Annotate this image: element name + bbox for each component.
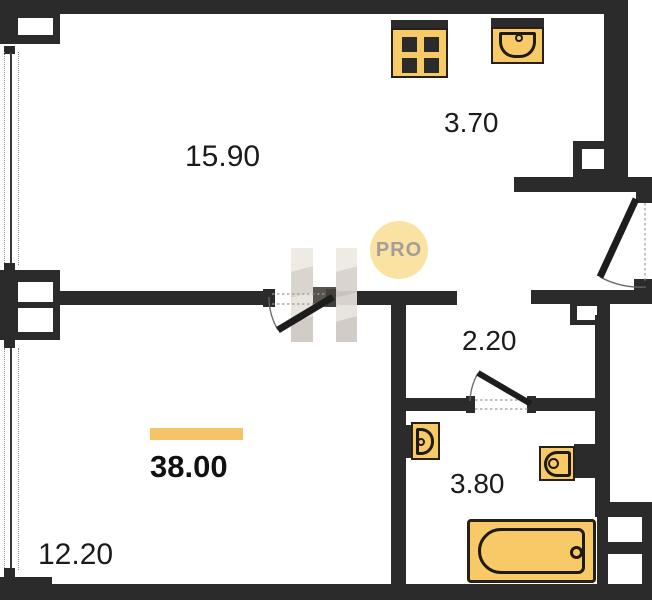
watermark-logo-crossbar bbox=[313, 287, 336, 307]
wall-kitchen-right bbox=[604, 2, 628, 141]
bathtub-icon bbox=[467, 519, 596, 583]
pier-notch-upper bbox=[18, 282, 53, 302]
bathroom-door-leaf bbox=[478, 373, 531, 404]
wall-entry-bottom bbox=[531, 290, 652, 304]
wall-notch-top-left bbox=[18, 18, 53, 35]
floor-plan: PRO 15.90 3.70 2.20 3.80 12.20 38.00 bbox=[0, 0, 652, 600]
window-bedroom bbox=[4, 348, 19, 570]
bathroom-door-jamb-left bbox=[466, 396, 475, 413]
wall-bathroom-top-right bbox=[536, 398, 596, 411]
entry-door-hinge-block bbox=[636, 192, 652, 203]
stove-burner bbox=[424, 58, 439, 73]
total-area-value: 38.00 bbox=[150, 451, 228, 482]
wall-divider-left bbox=[60, 291, 263, 305]
wash-basin-drain bbox=[417, 438, 425, 446]
pier-notch-hall bbox=[577, 306, 597, 320]
kitchen-sink-icon bbox=[491, 27, 544, 64]
entry-door-leaf bbox=[600, 199, 636, 277]
shaft-right-wall bbox=[642, 502, 652, 600]
interior-door-jamb-left bbox=[263, 289, 275, 307]
entry-door-stop-block bbox=[634, 279, 652, 291]
kitchen-sink-counter-strip bbox=[491, 18, 544, 27]
window-glass-line bbox=[10, 52, 12, 265]
window-glass-line bbox=[10, 348, 12, 570]
stove-burner bbox=[402, 37, 417, 52]
wall-entry-top bbox=[514, 177, 652, 192]
bathtub-drain bbox=[570, 546, 583, 559]
window-living bbox=[4, 52, 19, 265]
window2-top-stub bbox=[4, 340, 15, 348]
pier-notch-lower bbox=[18, 308, 53, 332]
room-area-bedroom: 12.20 bbox=[38, 540, 113, 570]
wash-basin-icon bbox=[411, 422, 440, 460]
wall-bathroom-top-left bbox=[391, 398, 466, 411]
bathroom-door-jamb-right bbox=[527, 396, 536, 413]
room-area-living: 15.90 bbox=[185, 142, 260, 172]
room-area-hallway: 2.20 bbox=[462, 327, 517, 355]
stove-burner bbox=[424, 37, 439, 52]
stove-burner bbox=[402, 58, 417, 73]
wall-hall-right bbox=[595, 315, 610, 502]
stove-icon bbox=[391, 28, 448, 78]
pier-notch-kitchen bbox=[582, 149, 604, 169]
watermark-logo-right-bar bbox=[336, 248, 357, 342]
total-area-bar bbox=[150, 428, 243, 440]
shaft-left-wall bbox=[597, 517, 608, 584]
toilet-icon bbox=[539, 446, 575, 481]
kitchen-sink-drain bbox=[515, 34, 523, 42]
toilet-flush bbox=[548, 458, 559, 469]
bathtub-inner bbox=[478, 528, 585, 574]
watermark-logo-left-bar bbox=[291, 248, 313, 342]
pro-watermark-badge: PRO bbox=[370, 221, 428, 279]
wall-bottom bbox=[0, 584, 652, 600]
toilet-backing-wall bbox=[574, 444, 596, 478]
room-area-kitchen: 3.70 bbox=[444, 109, 499, 137]
bathroom-door-opening-dashes bbox=[475, 400, 528, 409]
wall-top bbox=[0, 0, 628, 14]
room-area-bathroom: 3.80 bbox=[450, 470, 505, 498]
shaft-middle-bar bbox=[608, 542, 642, 554]
window2-bottom-stub bbox=[4, 568, 15, 577]
